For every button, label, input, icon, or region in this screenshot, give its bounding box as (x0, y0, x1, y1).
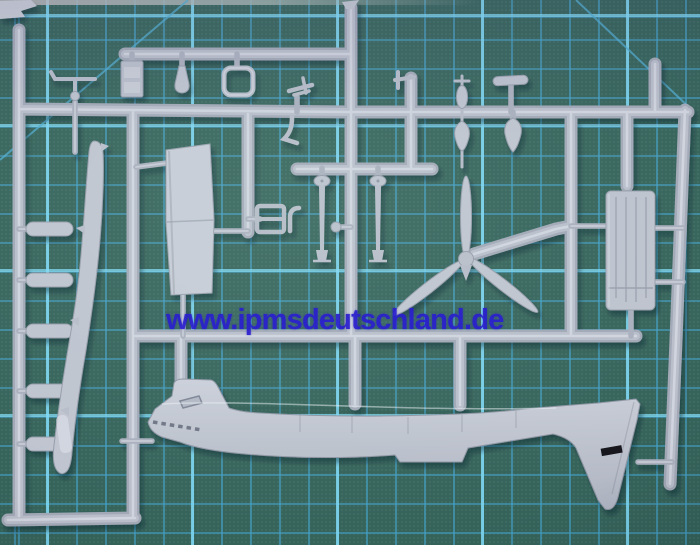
part-bulkhead-frame (257, 206, 299, 232)
part-aerial-mast (51, 72, 95, 101)
part-exhaust-bell (175, 66, 189, 93)
part-ball-knob (331, 222, 341, 232)
part-seat-bracket (289, 78, 312, 95)
part-finned-bomb-and-tank (455, 76, 470, 167)
part-tailplane-strip (493, 75, 528, 86)
part-propeller (390, 176, 541, 319)
part-control-arm (284, 117, 297, 143)
photo-model-kit-sprue: www.ipmsdeutschland.de (0, 0, 700, 545)
part-spinner-teardrop (505, 118, 522, 152)
corner-sprue-piece (0, 0, 37, 19)
part-fuselage-half (148, 379, 640, 510)
part-instrument-box (121, 61, 143, 97)
part-outer-wing-blade (53, 141, 109, 474)
sprue-frame (0, 0, 700, 545)
watermark: www.ipmsdeutschland.de (166, 304, 700, 337)
part-radiator-block (606, 191, 655, 310)
part-windscreen-frame (224, 68, 253, 95)
part-wing-panel (166, 144, 214, 295)
